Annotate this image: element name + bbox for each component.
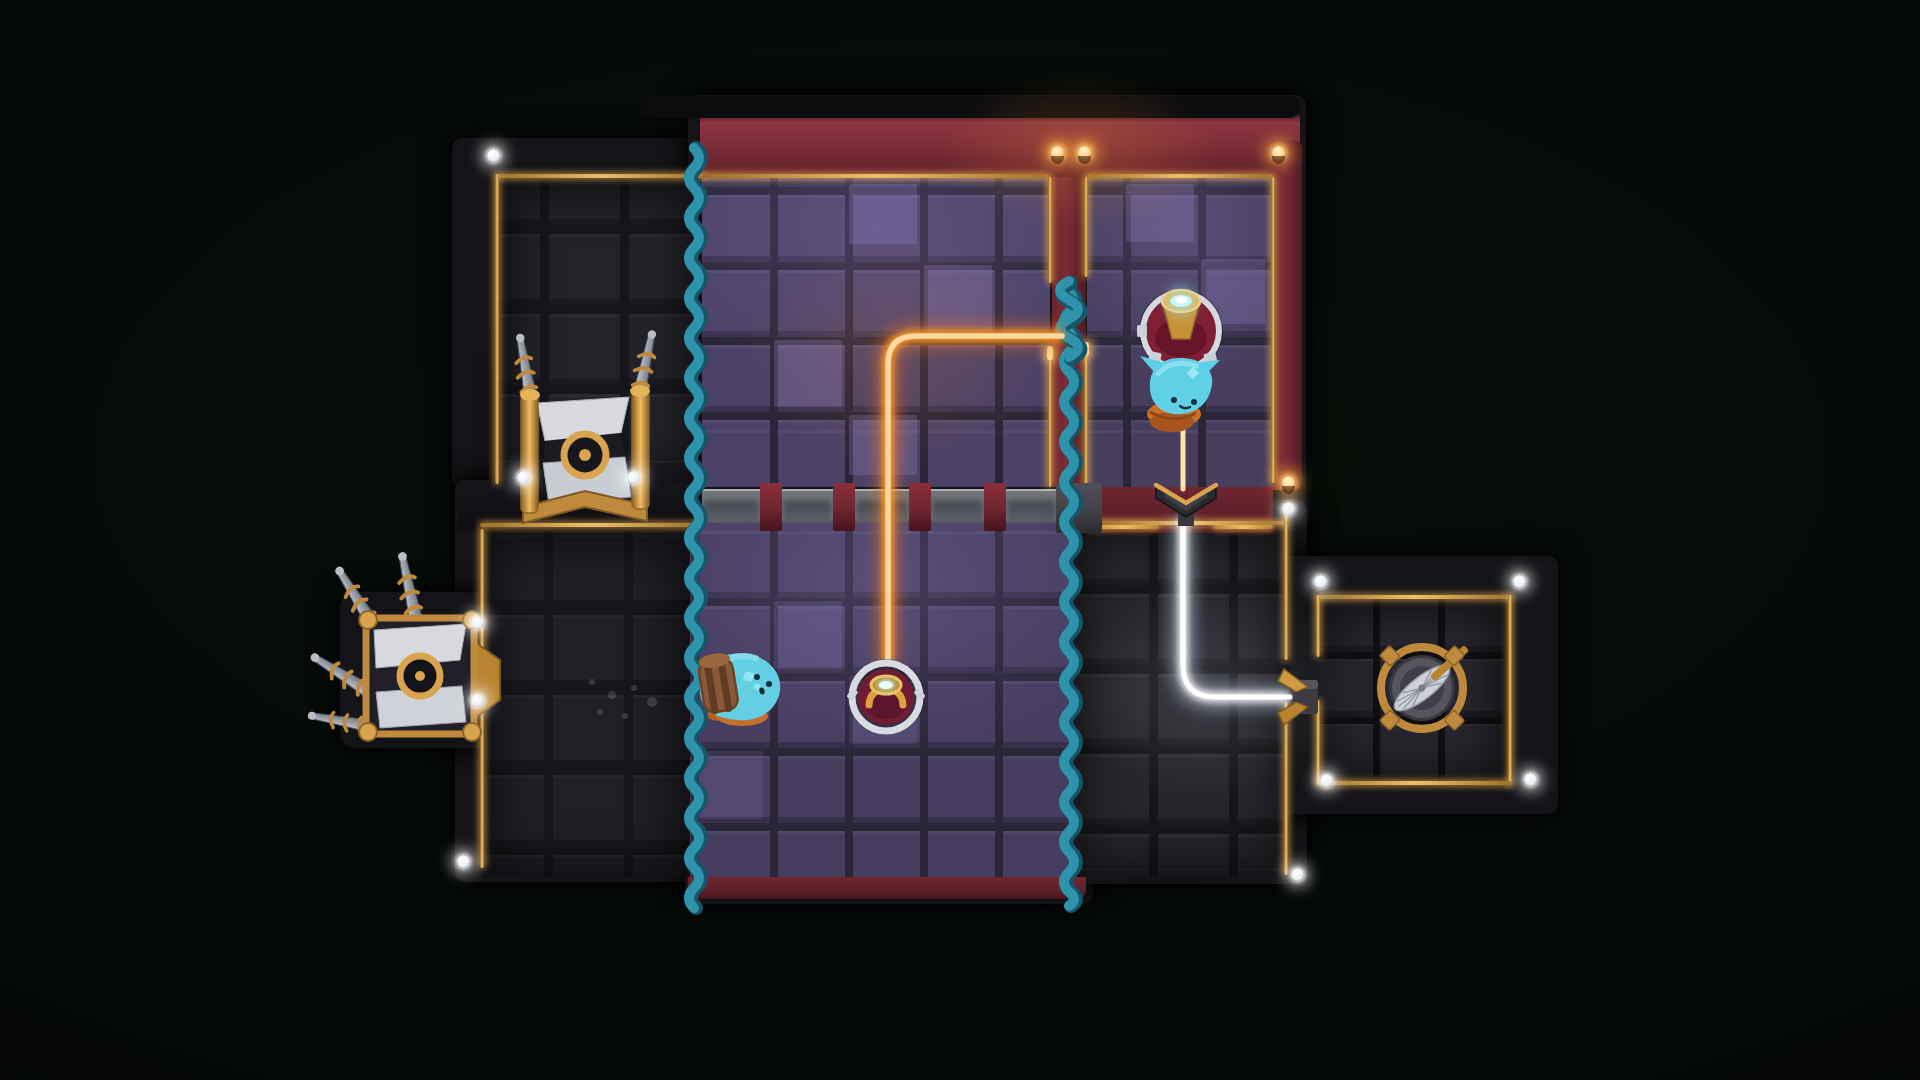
creature-on-pot[interactable]: [1140, 356, 1220, 432]
gold-lamp: [1272, 146, 1285, 159]
fx-layer: [0, 0, 1920, 1080]
game-viewport: [0, 0, 1920, 1080]
beam-receiver[interactable]: [846, 659, 926, 735]
corner-light: [1291, 868, 1304, 881]
drill-rig-top[interactable]: [510, 328, 660, 523]
white-beam: [1183, 518, 1290, 697]
corner-light: [471, 694, 484, 707]
corner-light: [1320, 774, 1333, 787]
kelp-rope-right: [1064, 292, 1076, 906]
corner-light: [457, 855, 470, 868]
gold-lamp: [1078, 146, 1091, 159]
gold-lamp: [1282, 476, 1295, 489]
corner-light: [1524, 773, 1537, 786]
corner-light: [517, 471, 530, 484]
fan-hatch[interactable]: [1380, 645, 1470, 731]
kelp-rope-left: [689, 148, 701, 908]
corner-light: [627, 471, 640, 484]
creature-with-backpack[interactable]: [697, 651, 781, 726]
drill-rig-left[interactable]: [306, 551, 500, 741]
corner-light: [1314, 575, 1327, 588]
dust-speckles: [589, 679, 657, 719]
corner-light: [487, 149, 500, 162]
gold-lamp: [1051, 146, 1064, 159]
corner-light: [471, 616, 484, 629]
orange-beam: [888, 336, 1062, 662]
corner-light: [1282, 502, 1295, 515]
corner-light: [1513, 575, 1526, 588]
chevron-gate[interactable]: [1156, 485, 1216, 526]
